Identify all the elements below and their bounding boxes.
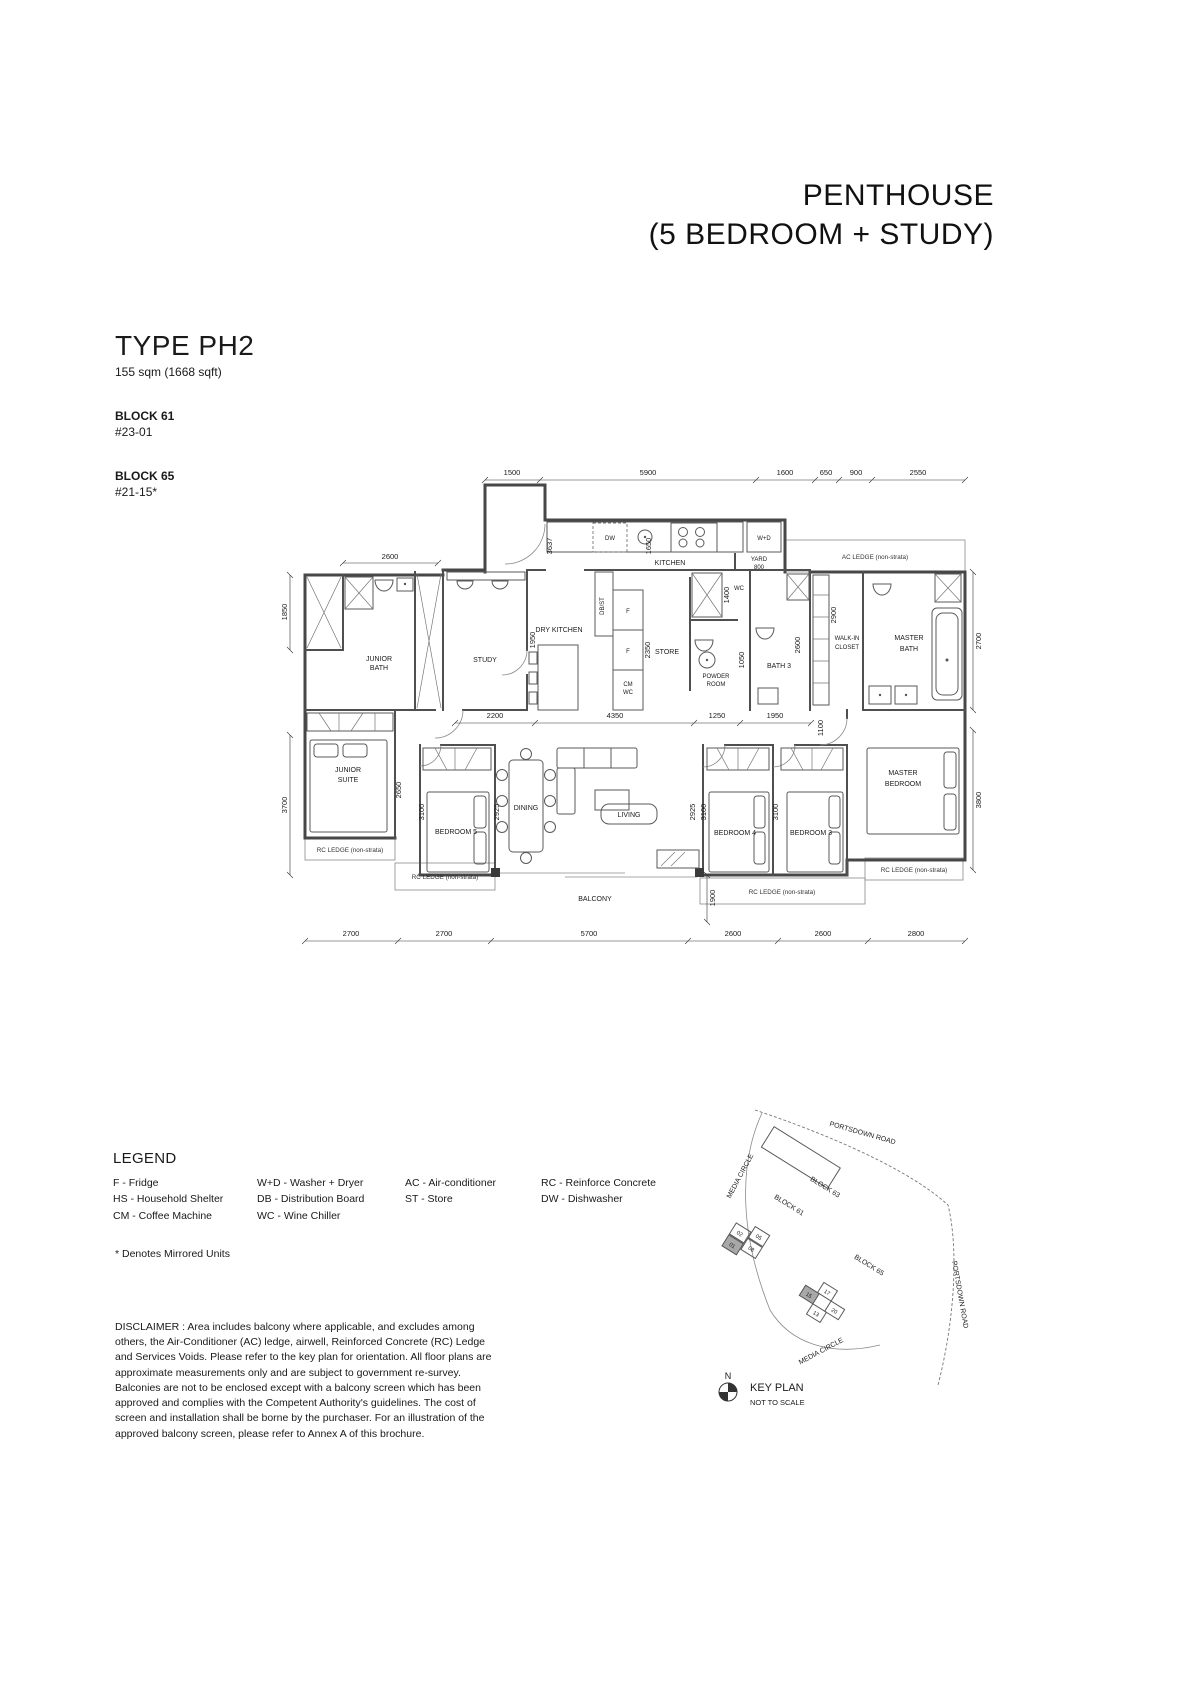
kitchen-fixtures [529,522,781,710]
keyplan-roads [746,1110,954,1385]
legend-item: DW - Dishwasher [541,1191,691,1207]
inner-walls [305,554,965,875]
legend-item: DB - Distribution Board [257,1191,379,1207]
keyplan-road-labels: PORTSDOWN ROAD PORTSDOWN ROAD MEDIA CIRC… [726,1121,969,1367]
dim-junior-bath-w: 2600 [382,552,399,561]
service-shafts [307,573,722,708]
label-bedroom5: BEDROOM 5 [435,829,477,836]
dim-bedroom5: 3100 [417,804,426,821]
study-furniture [447,572,525,589]
dim-bath3: 2600 [793,637,802,654]
dim-top-0: 1500 [504,468,521,477]
legend-title: LEGEND [113,1150,717,1167]
label-junior-bath-1: JUNIOR [366,656,392,663]
legend-item: ST - Store [405,1191,515,1207]
label-dw: DW [605,536,615,542]
dims-bottom: 2700 2700 5700 2600 2600 2800 [302,929,968,944]
label-dining: DINING [514,805,539,812]
block65-label: BLOCK 65 [853,1254,885,1278]
label-powder-1: POWDER [703,674,731,680]
dim-shaft: 1400 [722,587,731,604]
label-powder-2: ROOM [707,682,726,688]
label-bedroom4: BEDROOM 4 [714,830,756,837]
floor-plan: JUNIOR BATH STUDY DRY KITCHEN DB/ST KITC… [280,460,990,960]
label-wc: WC [734,586,745,592]
dim-study: 1950 [528,632,537,649]
dim-bottom-2: 5700 [581,929,598,938]
dim-bottom-3: 2600 [725,929,742,938]
legend-item: W+D - Washer + Dryer [257,1175,379,1191]
label-master-bedroom-1: MASTER [888,770,917,777]
dim-balcony: 1900 [708,890,717,907]
mirrored-note: * Denotes Mirrored Units [115,1248,230,1260]
block61-label: BLOCK 61 [773,1194,805,1218]
compass-quadrant [719,1392,728,1401]
road-portsdown-top: PORTSDOWN ROAD [829,1121,897,1147]
label-yard-1: YARD [751,557,768,563]
legend-item: F - Fridge [113,1175,231,1191]
unit-area: 155 sqm (1668 sqft) [115,365,254,379]
block-61-unit: #23-01 [115,425,254,439]
dims-right: 2700 3800 [970,569,983,873]
label-junior-suite-2: SUITE [338,777,359,784]
label-yard-2: 800 [754,565,765,571]
dim-living: 2925 [688,804,697,821]
legend-item: RC - Reinforce Concrete [541,1175,691,1191]
dims-top: 1500 5900 1600 650 900 2550 [482,468,968,483]
label-fridge-1: F [626,609,630,615]
key-plan: PORTSDOWN ROAD PORTSDOWN ROAD MEDIA CIRC… [700,1095,1000,1425]
legend-item: HS - Household Shelter [113,1191,231,1207]
dim-top-1: 5900 [640,468,657,477]
label-bedroom3: BEDROOM 3 [790,830,832,837]
ledge-outlines [305,540,965,904]
label-fridge-2: F [626,649,630,655]
dim-bottom-0: 2700 [343,929,360,938]
north-compass: N [719,1371,737,1401]
north-label: N [725,1371,732,1381]
legend-item: CM - Coffee Machine [113,1208,231,1224]
disclaimer: DISCLAIMER : Area includes balcony where… [115,1320,497,1442]
label-cm-wc: WC [623,690,634,696]
dim-top-5: 2550 [910,468,927,477]
compass-quadrant [728,1383,737,1392]
label-master-bath-2: BATH [900,646,918,653]
dim-top-3: 650 [820,468,833,477]
unit-02: 02 [735,1230,743,1238]
label-bath3: BATH 3 [767,663,791,670]
legend-col-1: F - Fridge HS - Household Shelter CM - C… [113,1175,231,1224]
label-ac-ledge: AC LEDGE (non-strata) [842,554,908,561]
dim-left-1: 3700 [280,797,289,814]
keyplan-block63: BLOCK 63 [761,1127,841,1200]
dim-powder: 1050 [737,652,746,669]
block-65-unit: #21-15* [115,485,254,499]
dim-kitchen: 1650 [644,538,653,555]
beds [310,740,959,872]
keyplan-block65: BLOCK 65 17 20 15 13 [793,1254,885,1330]
title-line-1: PENTHOUSE [649,176,994,215]
title-line-2: (5 BEDROOM + STUDY) [649,215,994,254]
legend: LEGEND F - Fridge HS - Household Shelter… [113,1150,717,1224]
block-65-name: BLOCK 65 [115,469,254,483]
label-junior-bath-2: BATH [370,665,388,672]
dim-store: 2350 [643,642,652,659]
dims-left: 1850 3700 [280,572,293,878]
dim-left-0: 1850 [280,604,289,621]
dims-middle: 2200 4350 1250 1950 [452,711,814,726]
dim-entry: 3637 [545,538,554,555]
label-living: LIVING [618,812,641,819]
label-study: STUDY [473,657,497,664]
legend-item: WC - Wine Chiller [257,1208,379,1224]
dim-bottom-4: 2600 [815,929,832,938]
unit-08: 08 [747,1246,755,1254]
unit-05: 05 [754,1234,762,1242]
keyplan-subtitle: NOT TO SCALE [750,1398,805,1407]
label-db-st: DB/ST [600,597,606,615]
label-junior-suite-1: JUNIOR [335,767,361,774]
label-dry-kitchen: DRY KITCHEN [535,627,582,634]
dim-walkin: 2900 [829,607,838,624]
dim-right-1: 3800 [974,792,983,809]
page-title: PENTHOUSE (5 BEDROOM + STUDY) [649,176,994,254]
unit-info: TYPE PH2 155 sqm (1668 sqft) BLOCK 61 #2… [115,330,254,499]
dim-bottom-5: 2800 [908,929,925,938]
unit-type: TYPE PH2 [115,330,254,362]
dim-bedroom3: 3100 [771,804,780,821]
dim-mid-1: 4350 [607,711,624,720]
label-walkin-2: CLOSET [835,645,859,651]
legend-col-4: RC - Reinforce Concrete DW - Dishwasher [541,1175,691,1224]
label-master-bath-1: MASTER [894,635,923,642]
label-walkin-1: WALK-IN [835,636,860,642]
label-rc-ledge-4: RC LEDGE (non-strata) [881,867,948,874]
dim-bottom-1: 2700 [436,929,453,938]
label-master-bedroom-2: BEDROOM [885,781,921,788]
label-kitchen: KITCHEN [655,560,686,567]
dim-hall: 1100 [816,720,825,736]
keyplan-block61: BLOCK 61 05 08 02 01 [722,1194,805,1264]
dim-bedroom4: 3100 [699,804,708,821]
dim-junior-suite: 2650 [394,782,403,799]
dim-right-0: 2700 [974,633,983,650]
keyplan-title: KEY PLAN [750,1382,804,1394]
block-61-name: BLOCK 61 [115,409,254,423]
label-rc-ledge-2: RC LEDGE (non-strata) [412,874,479,881]
label-balcony: BALCONY [578,896,612,903]
label-cm: CM [623,682,632,688]
dim-mid-2: 1250 [709,711,726,720]
legend-item: AC - Air-conditioner [405,1175,515,1191]
label-rc-ledge-1: RC LEDGE (non-strata) [317,847,384,854]
dim-dining: 2925 [492,804,501,821]
block63-label: BLOCK 63 [809,1176,841,1200]
dim-top-2: 1600 [777,468,794,477]
legend-col-3: AC - Air-conditioner ST - Store [405,1175,515,1224]
label-rc-ledge-3: RC LEDGE (non-strata) [749,889,816,896]
dim-mid-3: 1950 [767,711,784,720]
road-media-left: MEDIA CIRCLE [726,1153,756,1200]
label-wd: W+D [757,536,771,542]
dim-top-4: 900 [850,468,863,477]
label-store: STORE [655,649,679,656]
legend-col-2: W+D - Washer + Dryer DB - Distribution B… [257,1175,379,1224]
dim-mid-0: 2200 [487,711,504,720]
